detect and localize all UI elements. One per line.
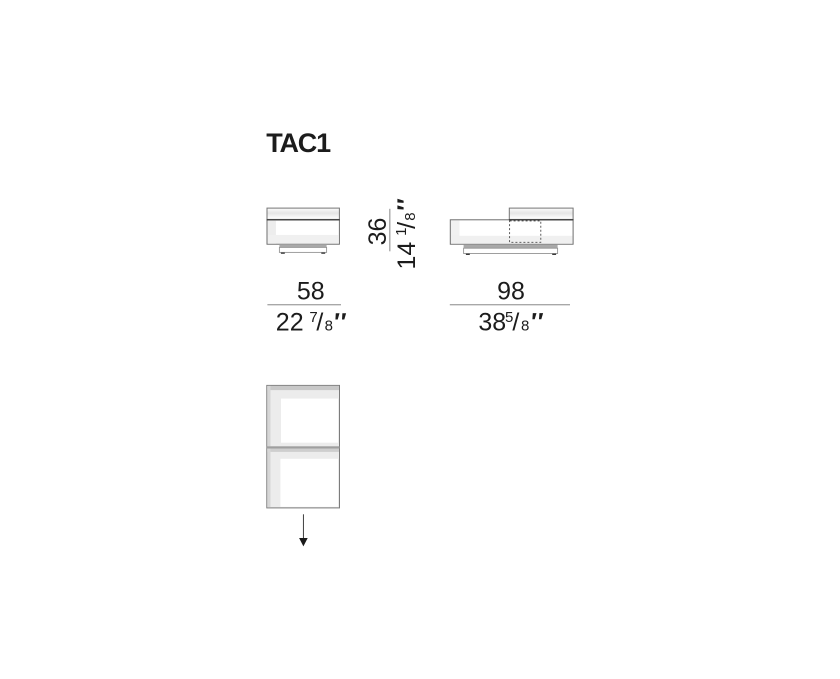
svg-text:36: 36	[364, 218, 392, 246]
svg-text:385/8: 385/8	[478, 309, 529, 337]
svg-text:227/8: 227/8	[276, 309, 333, 337]
svg-text:TAC1: TAC1	[266, 128, 331, 158]
svg-text:98: 98	[497, 278, 525, 306]
svg-text:58: 58	[297, 277, 325, 305]
svg-text:141/8: 141/8	[393, 212, 421, 269]
